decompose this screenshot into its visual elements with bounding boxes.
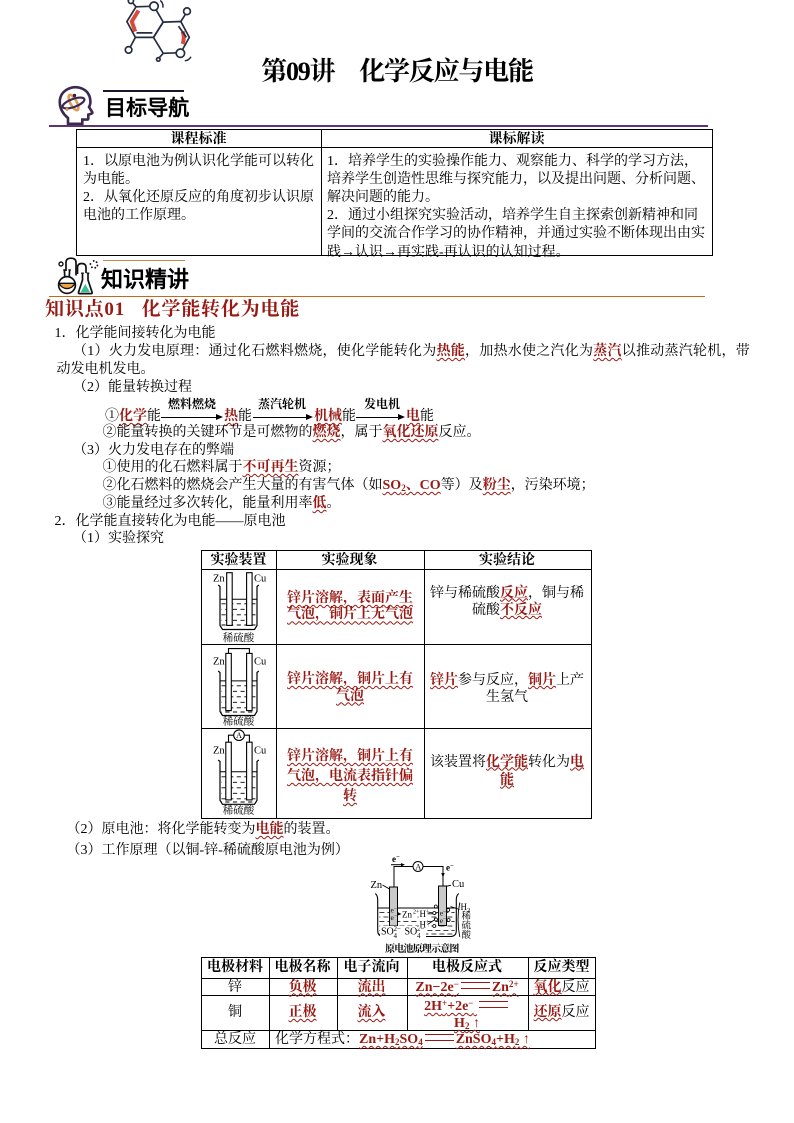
svg-text:4: 4 bbox=[417, 932, 421, 940]
svg-text:Zn: Zn bbox=[213, 574, 225, 585]
svg-text:4: 4 bbox=[394, 932, 398, 940]
svg-text:Zn: Zn bbox=[402, 910, 412, 920]
svg-text:稀硫酸: 稀硫酸 bbox=[223, 631, 255, 644]
svg-text:A: A bbox=[236, 731, 242, 740]
svg-text:Cu: Cu bbox=[452, 879, 465, 890]
svg-text:稀硫酸: 稀硫酸 bbox=[223, 715, 255, 728]
svg-text:e−: e− bbox=[392, 854, 400, 864]
svg-text:稀硫酸: 稀硫酸 bbox=[223, 804, 255, 817]
svg-text:SO: SO bbox=[405, 927, 418, 938]
svg-text:SO: SO bbox=[381, 927, 394, 938]
svg-text:2−: 2− bbox=[394, 925, 402, 933]
svg-text:+: + bbox=[426, 919, 430, 926]
svg-text:Zn: Zn bbox=[213, 746, 225, 757]
svg-text:e−: e− bbox=[446, 863, 454, 873]
svg-text:Zn: Zn bbox=[213, 657, 225, 668]
svg-text:硫: 硫 bbox=[462, 920, 472, 932]
svg-text:Cu: Cu bbox=[254, 746, 267, 757]
svg-text:Cu: Cu bbox=[254, 657, 267, 668]
svg-text:+: + bbox=[426, 909, 430, 916]
svg-text:A: A bbox=[415, 862, 421, 871]
svg-text:酸: 酸 bbox=[462, 929, 472, 941]
svg-text:Zn: Zn bbox=[371, 880, 383, 891]
svg-text:Cu: Cu bbox=[254, 574, 267, 585]
svg-text:稀: 稀 bbox=[462, 910, 472, 922]
